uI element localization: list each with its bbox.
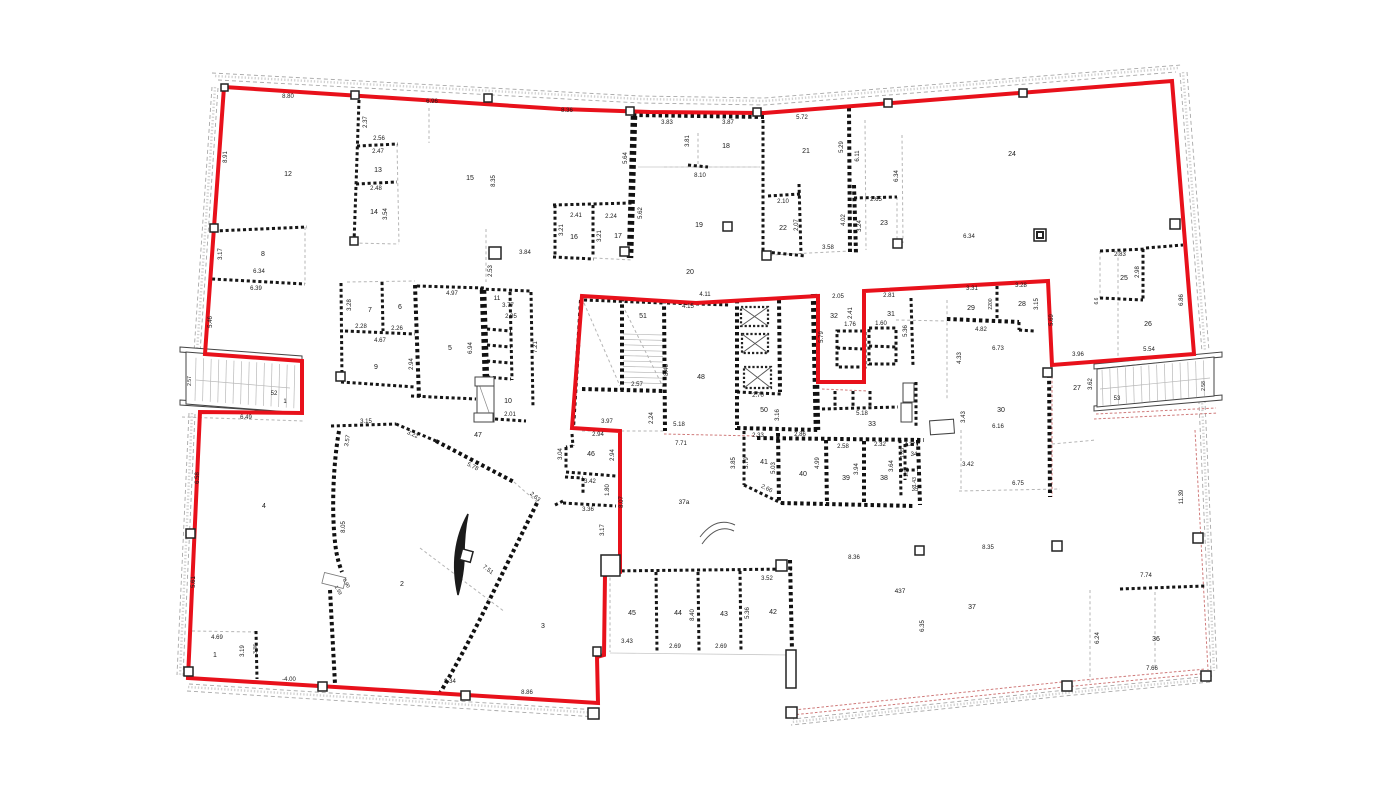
svg-text:8.46: 8.46 [664,364,670,376]
svg-text:7.21: 7.21 [533,341,539,353]
svg-text:2.58: 2.58 [1201,381,1207,391]
svg-text:6.96: 6.96 [426,99,438,105]
svg-text:1.27: 1.27 [905,442,915,448]
svg-text:6.94: 6.94 [468,342,474,354]
svg-text:5: 5 [448,345,452,352]
svg-text:3.84: 3.84 [519,250,531,256]
svg-text:4.69: 4.69 [211,635,223,641]
svg-text:1.76: 1.76 [844,322,856,328]
svg-text:22: 22 [779,225,787,232]
svg-text:6.34: 6.34 [253,269,265,275]
svg-text:5.54: 5.54 [1143,347,1155,353]
svg-text:4.67: 4.67 [374,338,386,344]
svg-text:7.66: 7.66 [1146,666,1158,672]
svg-text:7: 7 [368,307,372,314]
svg-text:6.49: 6.49 [240,415,252,421]
svg-text:2.41: 2.41 [848,307,854,319]
svg-text:3.28: 3.28 [1015,283,1027,289]
svg-text:5.79: 5.79 [819,331,825,343]
svg-text:2.81: 2.81 [883,293,895,299]
svg-text:2.69: 2.69 [715,644,727,650]
svg-text:2.70: 2.70 [752,393,764,399]
svg-text:1: 1 [213,652,217,659]
svg-text:51: 51 [639,313,647,320]
svg-text:3.31: 3.31 [966,286,978,292]
svg-text:6.39: 6.39 [250,286,262,292]
svg-text:10: 10 [504,398,512,405]
svg-text:5.36: 5.36 [903,325,909,337]
svg-text:34: 34 [911,452,918,458]
svg-text:26: 26 [1144,321,1152,328]
svg-text:9: 9 [374,364,378,371]
svg-text:3.28: 3.28 [347,299,353,311]
svg-text:2.37: 2.37 [363,116,369,128]
svg-text:3.83: 3.83 [661,120,673,126]
svg-text:4.11: 4.11 [699,292,711,298]
svg-text:5.64: 5.64 [623,152,629,164]
svg-text:3.15: 3.15 [1034,298,1040,310]
svg-text:20: 20 [686,269,694,276]
svg-text:30: 30 [997,407,1005,414]
svg-text:3.24: 3.24 [857,220,863,232]
svg-text:47: 47 [474,432,482,439]
svg-text:42: 42 [769,609,777,616]
svg-text:3.97: 3.97 [601,419,613,425]
svg-text:3.58: 3.58 [822,245,834,251]
svg-text:2.57: 2.57 [631,382,643,388]
svg-text:7.74: 7.74 [1140,573,1152,579]
svg-text:3: 3 [541,623,545,630]
svg-text:19: 19 [695,222,703,229]
svg-text:28: 28 [1018,301,1026,308]
svg-text:7.71: 7.71 [675,441,687,447]
svg-text:29: 29 [967,305,975,312]
svg-text:6.75: 6.75 [1012,481,1024,487]
svg-text:3.54: 3.54 [383,208,389,220]
svg-text:8.35: 8.35 [491,175,497,187]
svg-text:8.10: 8.10 [694,173,706,179]
svg-text:2.94: 2.94 [610,449,616,461]
svg-text:2.57: 2.57 [187,376,193,386]
svg-text:11.39: 11.39 [1179,489,1185,504]
svg-text:1.60: 1.60 [875,321,887,327]
svg-text:3.17: 3.17 [218,248,224,260]
svg-text:2.47: 2.47 [372,149,384,155]
svg-text:3.21: 3.21 [597,230,603,242]
svg-text:13: 13 [374,167,382,174]
svg-text:36: 36 [1152,636,1160,643]
svg-text:39: 39 [842,475,850,482]
svg-text:6.73: 6.73 [992,346,1004,352]
svg-text:11: 11 [494,295,501,302]
svg-text:1.51: 1.51 [904,467,910,477]
svg-text:48: 48 [697,374,705,381]
svg-text:4: 4 [262,503,266,510]
svg-text:3.79: 3.79 [744,457,750,469]
svg-text:2.95: 2.95 [505,314,517,320]
svg-text:8.36: 8.36 [848,555,860,561]
svg-text:23: 23 [880,220,888,227]
svg-text:4.97: 4.97 [446,291,458,297]
svg-text:2.07: 2.07 [794,219,800,231]
svg-text:37: 37 [968,604,976,611]
svg-text:2.53: 2.53 [488,265,494,277]
svg-text:38: 38 [880,475,888,482]
svg-text:6.6: 6.6 [1094,297,1100,304]
svg-text:8.34: 8.34 [444,679,456,685]
svg-text:1.80: 1.80 [605,484,611,496]
svg-text:5.36: 5.36 [745,607,751,619]
svg-text:6.11: 6.11 [855,150,861,162]
svg-text:8.40: 8.40 [690,609,696,621]
svg-text:5.62: 5.62 [638,207,644,219]
svg-text:3.85: 3.85 [731,457,737,469]
svg-text:25: 25 [1120,275,1128,282]
svg-text:2.32: 2.32 [874,442,886,448]
svg-text:2.05: 2.05 [832,294,844,300]
svg-text:40: 40 [799,471,807,478]
svg-text:2.94: 2.94 [409,358,415,370]
svg-text:5.18: 5.18 [856,411,868,417]
svg-text:3.43: 3.43 [961,411,967,423]
svg-text:5.18: 5.18 [673,422,685,428]
svg-text:2.28: 2.28 [355,324,367,330]
svg-text:6.34: 6.34 [963,234,975,240]
svg-text:8.35: 8.35 [982,545,994,551]
svg-text:17: 17 [614,233,622,240]
svg-text:35: 35 [912,487,919,493]
svg-text:27: 27 [1073,385,1081,392]
svg-text:6.86: 6.86 [1179,294,1185,306]
svg-text:3.52: 3.52 [761,576,773,582]
svg-text:1.85: 1.85 [900,448,906,458]
svg-text:6.58: 6.58 [195,472,201,484]
svg-text:3.42: 3.42 [584,479,596,485]
svg-text:6.34: 6.34 [894,170,900,182]
svg-text:43: 43 [720,611,728,618]
svg-text:5.72: 5.72 [796,115,808,121]
svg-text:3.94: 3.94 [854,463,860,475]
svg-text:3.19: 3.19 [240,645,246,657]
svg-text:3.43: 3.43 [621,639,633,645]
svg-text:-4.00: -4.00 [282,677,296,683]
svg-text:24: 24 [1008,151,1016,158]
svg-text:6.16: 6.16 [992,424,1004,430]
svg-text:53: 53 [1114,396,1121,402]
svg-text:8.07: 8.07 [619,496,625,508]
svg-text:2.48: 2.48 [370,186,382,192]
svg-text:2.69: 2.69 [669,644,681,650]
svg-text:4.15: 4.15 [682,304,694,310]
svg-text:3.21: 3.21 [559,224,565,236]
svg-text:21: 21 [802,148,810,155]
svg-text:4.99: 4.99 [815,457,821,469]
svg-text:6.24: 6.24 [1095,632,1101,644]
svg-text:2.65: 2.65 [870,197,882,203]
svg-text:50: 50 [760,407,768,414]
svg-text:2.24: 2.24 [649,412,655,424]
svg-text:2.58: 2.58 [837,444,849,450]
svg-text:14: 14 [370,209,378,216]
svg-text:5.61: 5.61 [191,576,197,588]
svg-text:2.94: 2.94 [592,432,604,438]
svg-text:2200: 2200 [988,298,994,309]
svg-text:2.01: 2.01 [504,412,516,418]
svg-text:3.04: 3.04 [558,448,564,460]
svg-text:2.83: 2.83 [1114,252,1126,258]
svg-text:33: 33 [868,421,876,428]
svg-text:2: 2 [400,581,404,588]
svg-text:2.26: 2.26 [391,326,403,332]
svg-text:2.41: 2.41 [570,213,582,219]
svg-text:18: 18 [722,143,730,150]
svg-text:3.36: 3.36 [582,507,594,513]
svg-text:3.64: 3.64 [889,460,895,472]
svg-text:8.36: 8.36 [561,108,573,114]
svg-text:3.62: 3.62 [1088,378,1094,390]
svg-text:44: 44 [674,610,682,617]
svg-text:5.46: 5.46 [208,316,214,328]
svg-text:2.86: 2.86 [794,432,806,438]
svg-text:8.80: 8.80 [282,94,294,100]
svg-text:3.96: 3.96 [1072,352,1084,358]
svg-text:437: 437 [895,588,906,595]
svg-text:3.15: 3.15 [360,419,372,425]
svg-text:45: 45 [628,610,636,617]
svg-text:31: 31 [887,311,895,318]
svg-text:32: 32 [830,313,838,320]
svg-text:4.02: 4.02 [841,214,847,226]
svg-text:8.05: 8.05 [341,521,347,533]
svg-text:3.87: 3.87 [722,120,734,126]
svg-text:3.16: 3.16 [775,409,781,421]
svg-text:8.86: 8.86 [521,690,533,696]
svg-text:6: 6 [398,304,402,311]
svg-text:12: 12 [284,171,292,178]
svg-text:37a: 37a [679,499,690,506]
svg-text:2.24: 2.24 [605,214,617,220]
svg-text:3.36: 3.36 [253,644,259,654]
svg-text:1.43: 1.43 [912,477,918,487]
svg-text:3.17: 3.17 [600,524,606,536]
svg-text:2.33: 2.33 [752,433,764,439]
svg-text:3.77: 3.77 [502,303,514,309]
svg-text:3.42: 3.42 [962,462,974,468]
svg-text:2.10: 2.10 [777,199,789,205]
svg-text:4.82: 4.82 [975,327,987,333]
svg-text:4.33: 4.33 [957,352,963,364]
svg-text:2.98: 2.98 [1135,266,1141,278]
svg-text:15: 15 [466,175,474,182]
svg-text:52: 52 [271,391,278,397]
svg-text:3.81: 3.81 [685,135,691,147]
svg-text:2.56: 2.56 [373,136,385,142]
svg-text:5.29: 5.29 [839,141,845,153]
svg-text:8.91: 8.91 [223,151,229,163]
svg-text:5.03: 5.03 [771,462,777,474]
svg-text:6.35: 6.35 [920,620,926,632]
svg-text:5.69: 5.69 [1049,314,1055,326]
svg-text:46: 46 [587,451,595,458]
svg-text:8: 8 [261,251,265,258]
svg-text:16: 16 [570,234,578,241]
svg-text:41: 41 [760,459,768,466]
